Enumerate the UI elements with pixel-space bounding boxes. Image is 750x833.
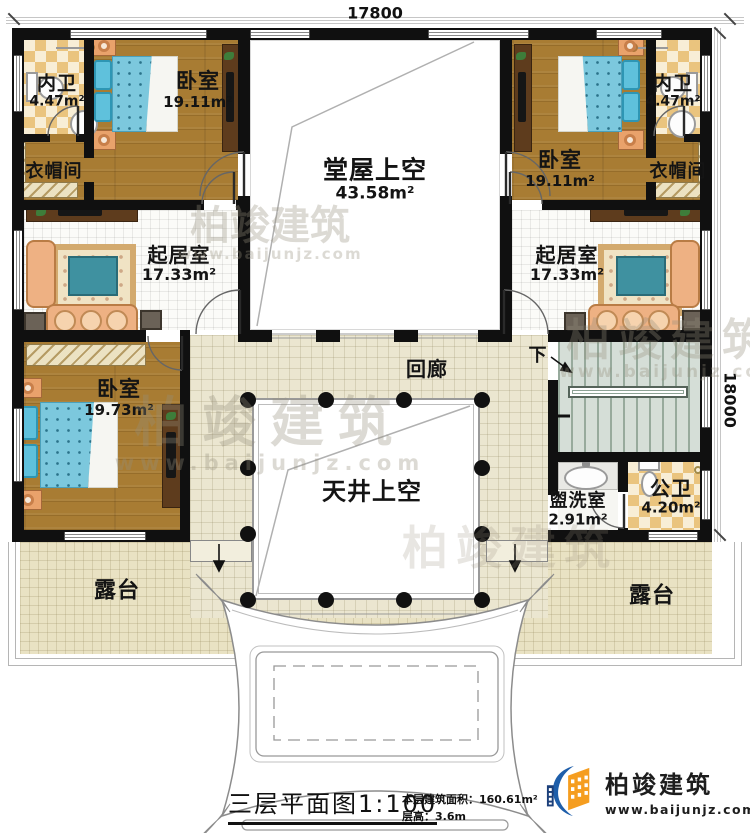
room-name: 露台	[94, 580, 140, 605]
window	[70, 30, 207, 38]
dimension-width: 17800	[347, 4, 403, 23]
room-label-bedroom-top-right: 卧室 19.11m²	[525, 149, 595, 189]
floor-plan: 17800 18000	[0, 0, 750, 833]
window	[428, 30, 529, 38]
room-label-terrace-right: 露台	[629, 585, 675, 610]
room-area: 17.33m²	[142, 266, 216, 284]
pillow	[622, 60, 640, 90]
room-name: 回廊	[406, 358, 448, 380]
company-logo: 柏竣建筑 www.baijunjz.com	[545, 762, 750, 820]
floor-area-row: 本层建筑面积：160.61m²	[402, 791, 538, 808]
dimension-height: 18000	[721, 372, 740, 428]
room-name: 公卫	[641, 477, 700, 499]
armchair	[26, 240, 56, 308]
room-area: 4.20m²	[641, 500, 700, 517]
wall	[500, 28, 512, 154]
room-label-courtyard: 天井上空	[322, 479, 422, 506]
plant-icon	[516, 52, 526, 60]
plant-icon	[166, 412, 176, 420]
side-table	[564, 312, 586, 332]
window	[702, 376, 710, 428]
room-name: 内卫	[29, 74, 84, 95]
plan-title-text: 三层平面图	[228, 790, 358, 818]
room-label-cloak-right: 衣帽间	[650, 162, 707, 182]
pillow	[94, 60, 112, 90]
wall	[618, 452, 628, 492]
room-name: 盥洗室	[548, 492, 607, 512]
armchair	[670, 240, 700, 308]
lamp-icon	[624, 40, 636, 52]
wall	[180, 330, 190, 542]
window	[64, 532, 146, 540]
wall	[684, 134, 712, 142]
room-area: 43.58m²	[323, 184, 427, 203]
terrace-step	[190, 540, 252, 562]
pillow	[94, 92, 112, 122]
column	[478, 330, 500, 342]
pillow	[622, 92, 640, 122]
logo-text-group: 柏竣建筑 www.baijunjz.com	[605, 765, 750, 817]
column	[250, 330, 272, 342]
room-area: 4.47m²	[645, 95, 700, 111]
room-name: 内卫	[645, 74, 700, 95]
stairs-down-label: 下	[529, 346, 548, 366]
room-name: 卧室	[84, 378, 154, 402]
wall	[500, 196, 512, 342]
logo-name: 柏竣建筑	[605, 765, 750, 800]
room-label-bath-left: 内卫 4.47m²	[29, 74, 84, 111]
stairs-direction-text: 下	[529, 346, 548, 366]
wardrobe-hatch	[26, 344, 146, 366]
lamp-icon	[98, 134, 110, 146]
terrace-step	[486, 540, 548, 562]
window	[14, 408, 22, 482]
sofa-cushion	[106, 310, 128, 332]
eave-line	[720, 28, 721, 542]
floor-area-value: 160.61m²	[479, 793, 538, 806]
wardrobe-hatch	[16, 182, 78, 198]
wall	[76, 134, 94, 142]
room-label-bedroom-top-left: 卧室 19.11m²	[163, 70, 233, 110]
floor-height-label: 层高：	[402, 810, 435, 823]
room-label-hall-void: 堂屋上空 43.58m²	[323, 156, 427, 203]
info-block: 本层建筑面积：160.61m² 层高：3.6m	[402, 791, 538, 825]
logo-building-icon	[545, 762, 597, 820]
window	[702, 470, 710, 520]
room-name: 露台	[629, 585, 675, 610]
side-table	[24, 312, 46, 332]
window	[596, 30, 662, 38]
wall	[238, 196, 250, 342]
wall	[12, 200, 204, 210]
tv	[518, 72, 526, 122]
room-area: 19.11m²	[525, 172, 595, 189]
room-label-public-bath: 公卫 4.20m²	[641, 477, 700, 516]
wall	[12, 330, 146, 342]
room-area: 2.91m²	[548, 512, 607, 529]
window	[14, 230, 22, 310]
room-name: 天井上空	[322, 479, 422, 506]
lamp-icon	[98, 40, 110, 52]
room-name: 卧室	[525, 149, 595, 173]
room-label-cloak-left: 衣帽间	[26, 162, 83, 182]
coffee-table	[616, 256, 666, 296]
sofa-cushion	[622, 310, 644, 332]
window	[14, 55, 22, 112]
room-name: 堂屋上空	[323, 156, 427, 184]
wall	[548, 452, 712, 462]
room-label-bath-right: 内卫 4.47m²	[645, 74, 700, 111]
wall	[12, 134, 50, 142]
room-name: 起居室	[142, 244, 216, 266]
wall	[548, 380, 558, 495]
eave-line	[717, 28, 718, 542]
room-name: 衣帽间	[650, 162, 707, 182]
room-label-corridor: 回廊	[406, 358, 448, 380]
eave-line	[6, 23, 744, 24]
room-name: 衣帽间	[26, 162, 83, 182]
room-label-terrace-left: 露台	[94, 580, 140, 605]
column	[316, 330, 340, 342]
lamp-icon	[624, 134, 636, 146]
room-name: 起居室	[530, 244, 604, 266]
wall	[646, 134, 654, 142]
wall	[542, 200, 712, 210]
window	[702, 230, 710, 310]
logo-url: www.baijunjz.com	[605, 802, 750, 817]
room-label-living-left: 起居室 17.33m²	[142, 244, 216, 284]
room-label-living-right: 起居室 17.33m²	[530, 244, 604, 284]
sink-icon	[564, 466, 608, 490]
floor-height-row: 层高：3.6m	[402, 808, 538, 825]
eave-line	[714, 28, 715, 542]
room-area: 4.47m²	[29, 95, 84, 111]
window	[702, 55, 710, 112]
plant-icon	[224, 52, 234, 60]
wall	[238, 28, 250, 154]
room-area: 19.11m²	[163, 93, 233, 110]
side-table	[140, 310, 162, 330]
window	[250, 30, 310, 38]
sofa-cushion	[80, 310, 102, 332]
room-name: 卧室	[163, 70, 233, 94]
floor-area-label: 本层建筑面积：	[402, 793, 479, 806]
room-label-washroom: 盥洗室 2.91m²	[548, 492, 607, 529]
window	[648, 532, 698, 540]
column	[394, 330, 418, 342]
sofa-cushion	[54, 310, 76, 332]
room-area: 17.33m²	[530, 266, 604, 284]
tv	[166, 432, 176, 478]
sofa-cushion	[596, 310, 618, 332]
wall	[548, 330, 712, 342]
floor-height-value: 3.6m	[435, 810, 466, 823]
room-area: 19.73m²	[84, 401, 154, 418]
sofa-cushion	[648, 310, 670, 332]
wall	[618, 528, 628, 542]
stair-handrail	[568, 386, 688, 398]
room-label-bedroom-bottom-left: 卧室 19.73m²	[84, 378, 154, 418]
coffee-table	[68, 256, 118, 296]
